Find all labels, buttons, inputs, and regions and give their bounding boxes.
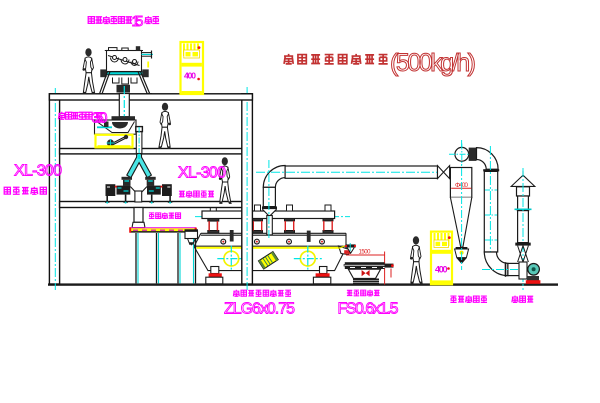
- svg-text:350: 350: [92, 110, 108, 127]
- svg-text:FS0.6x1.5: FS0.6x1.5: [338, 301, 399, 318]
- svg-text:400: 400: [184, 71, 196, 81]
- svg-text:1.5: 1.5: [132, 14, 144, 30]
- svg-text:(500kg/h): (500kg/h): [390, 49, 476, 77]
- svg-text:1500: 1500: [359, 250, 372, 256]
- svg-text:ZLG6x0.75: ZLG6x0.75: [224, 301, 295, 318]
- svg-text:400: 400: [435, 265, 448, 275]
- svg-text:XL-300: XL-300: [14, 163, 62, 180]
- svg-text:XL-300: XL-300: [178, 165, 226, 182]
